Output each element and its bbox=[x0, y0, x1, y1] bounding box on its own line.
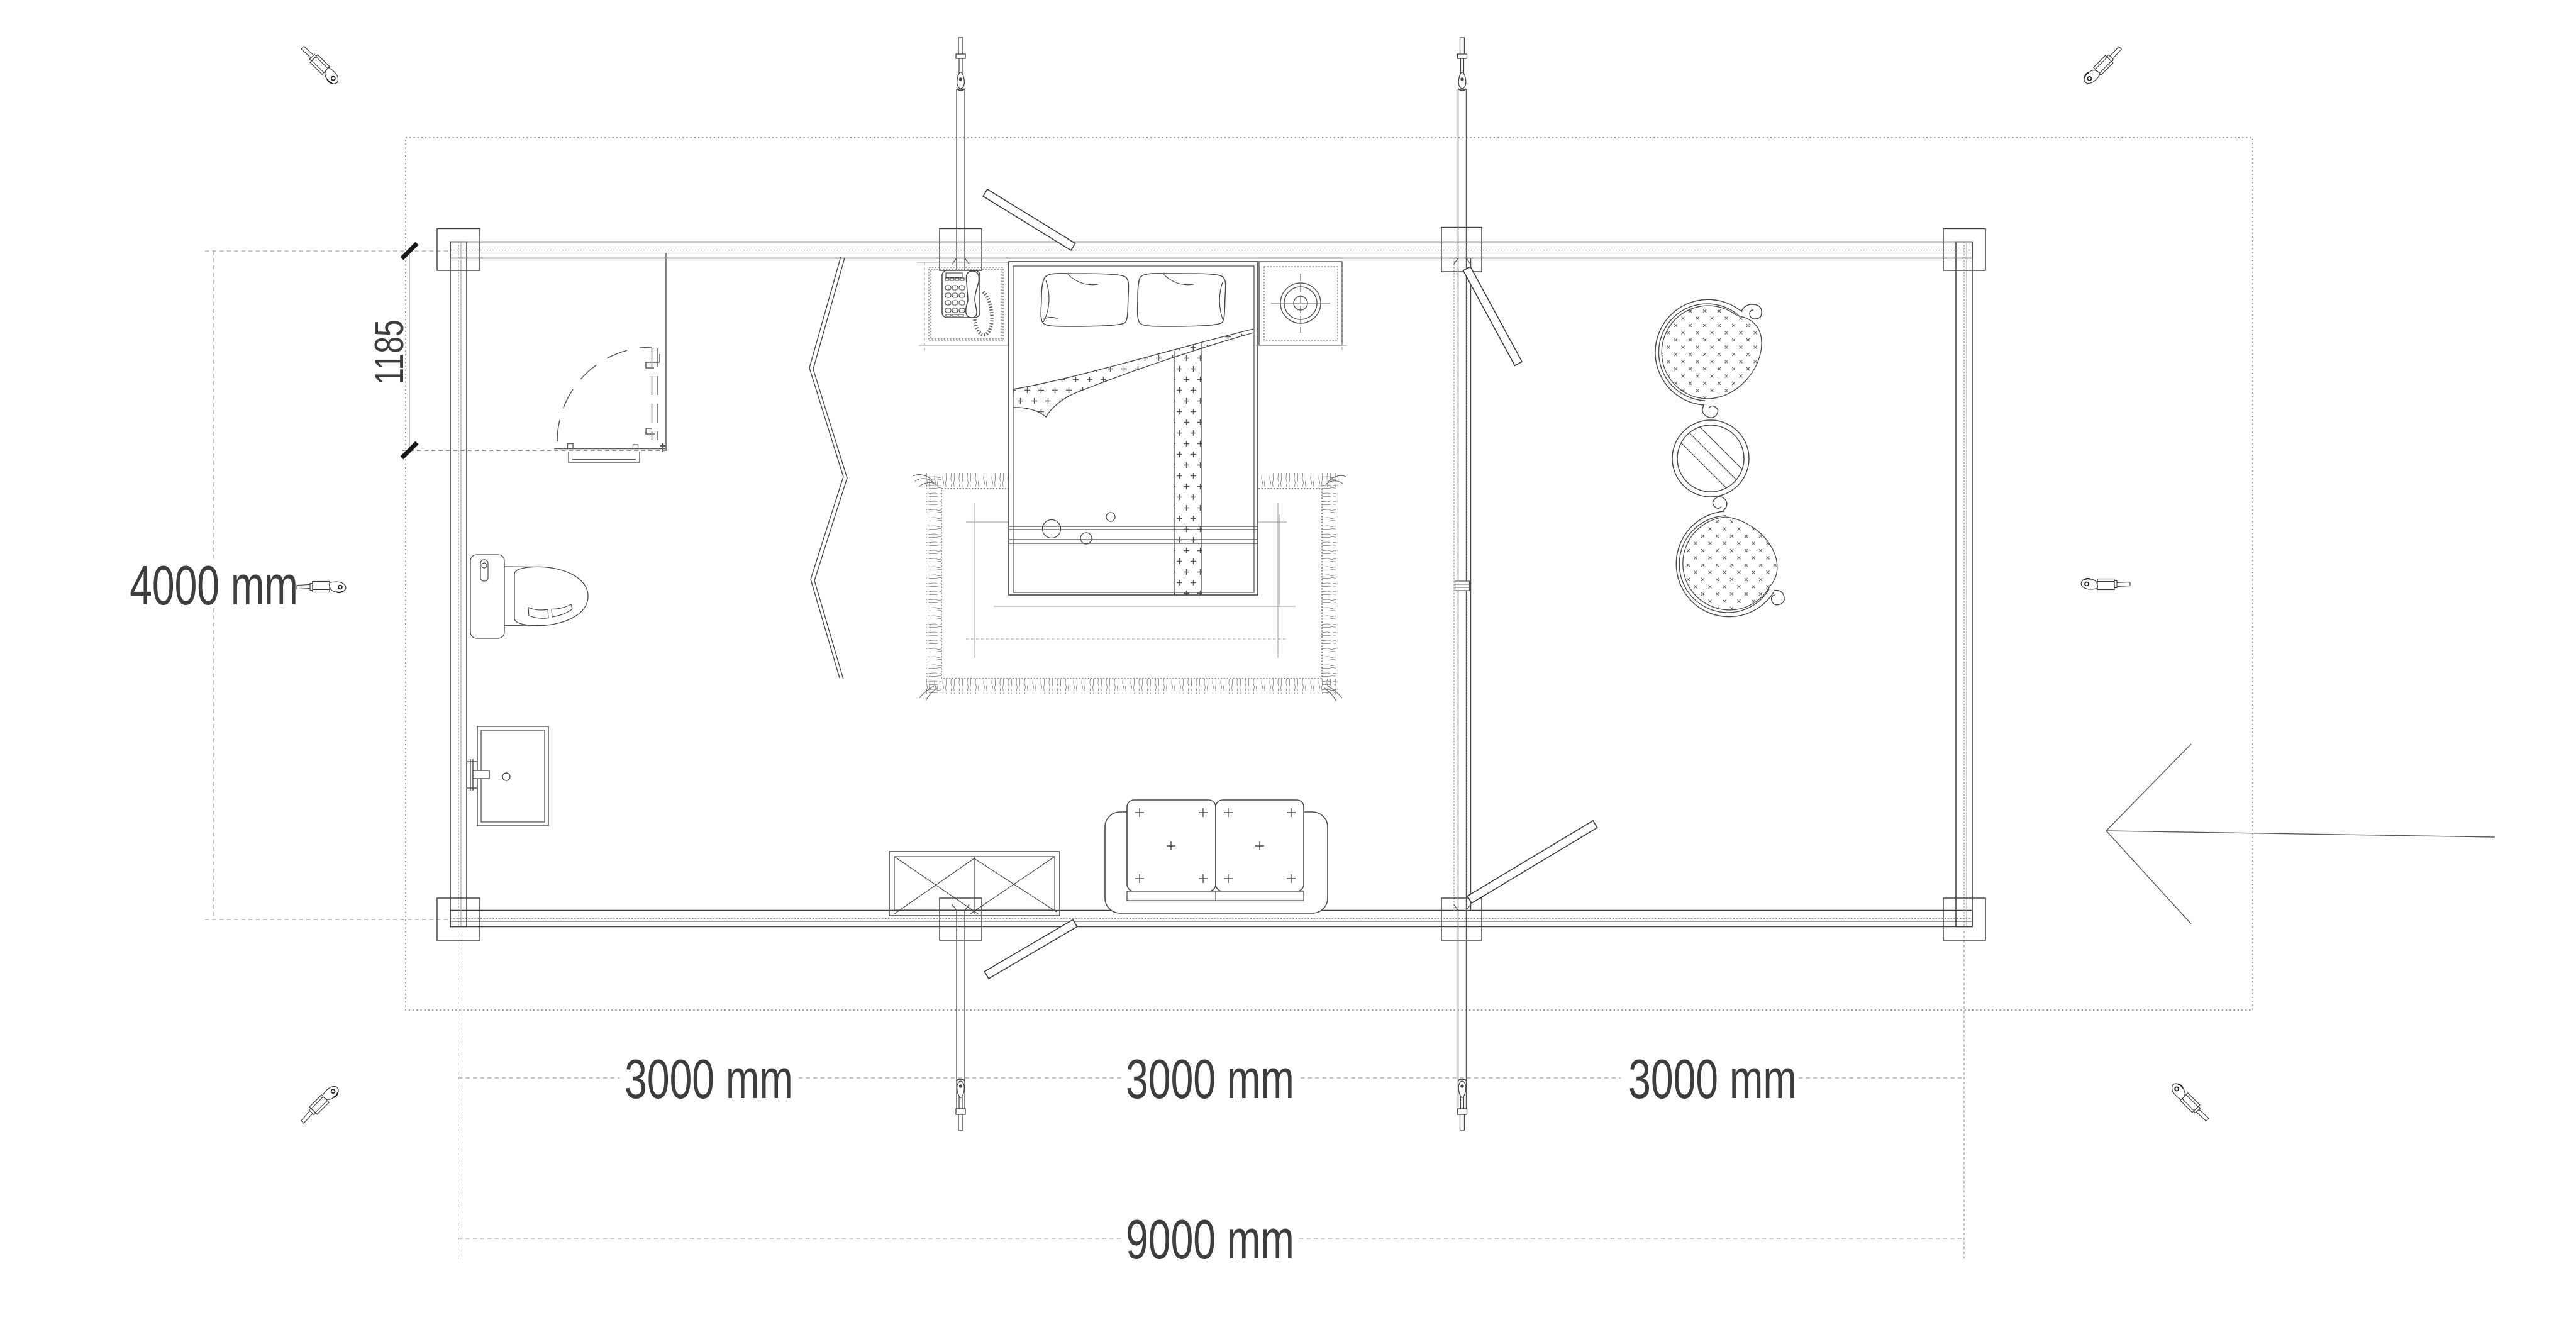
svg-text:1185: 1185 bbox=[367, 319, 413, 384]
svg-text:9000 mm: 9000 mm bbox=[1126, 1209, 1294, 1270]
svg-text:3000 mm: 3000 mm bbox=[1628, 1048, 1797, 1110]
svg-text:3000 mm: 3000 mm bbox=[625, 1048, 793, 1110]
svg-text:4000 mm: 4000 mm bbox=[130, 555, 298, 616]
svg-text:3000 mm: 3000 mm bbox=[1126, 1048, 1294, 1110]
